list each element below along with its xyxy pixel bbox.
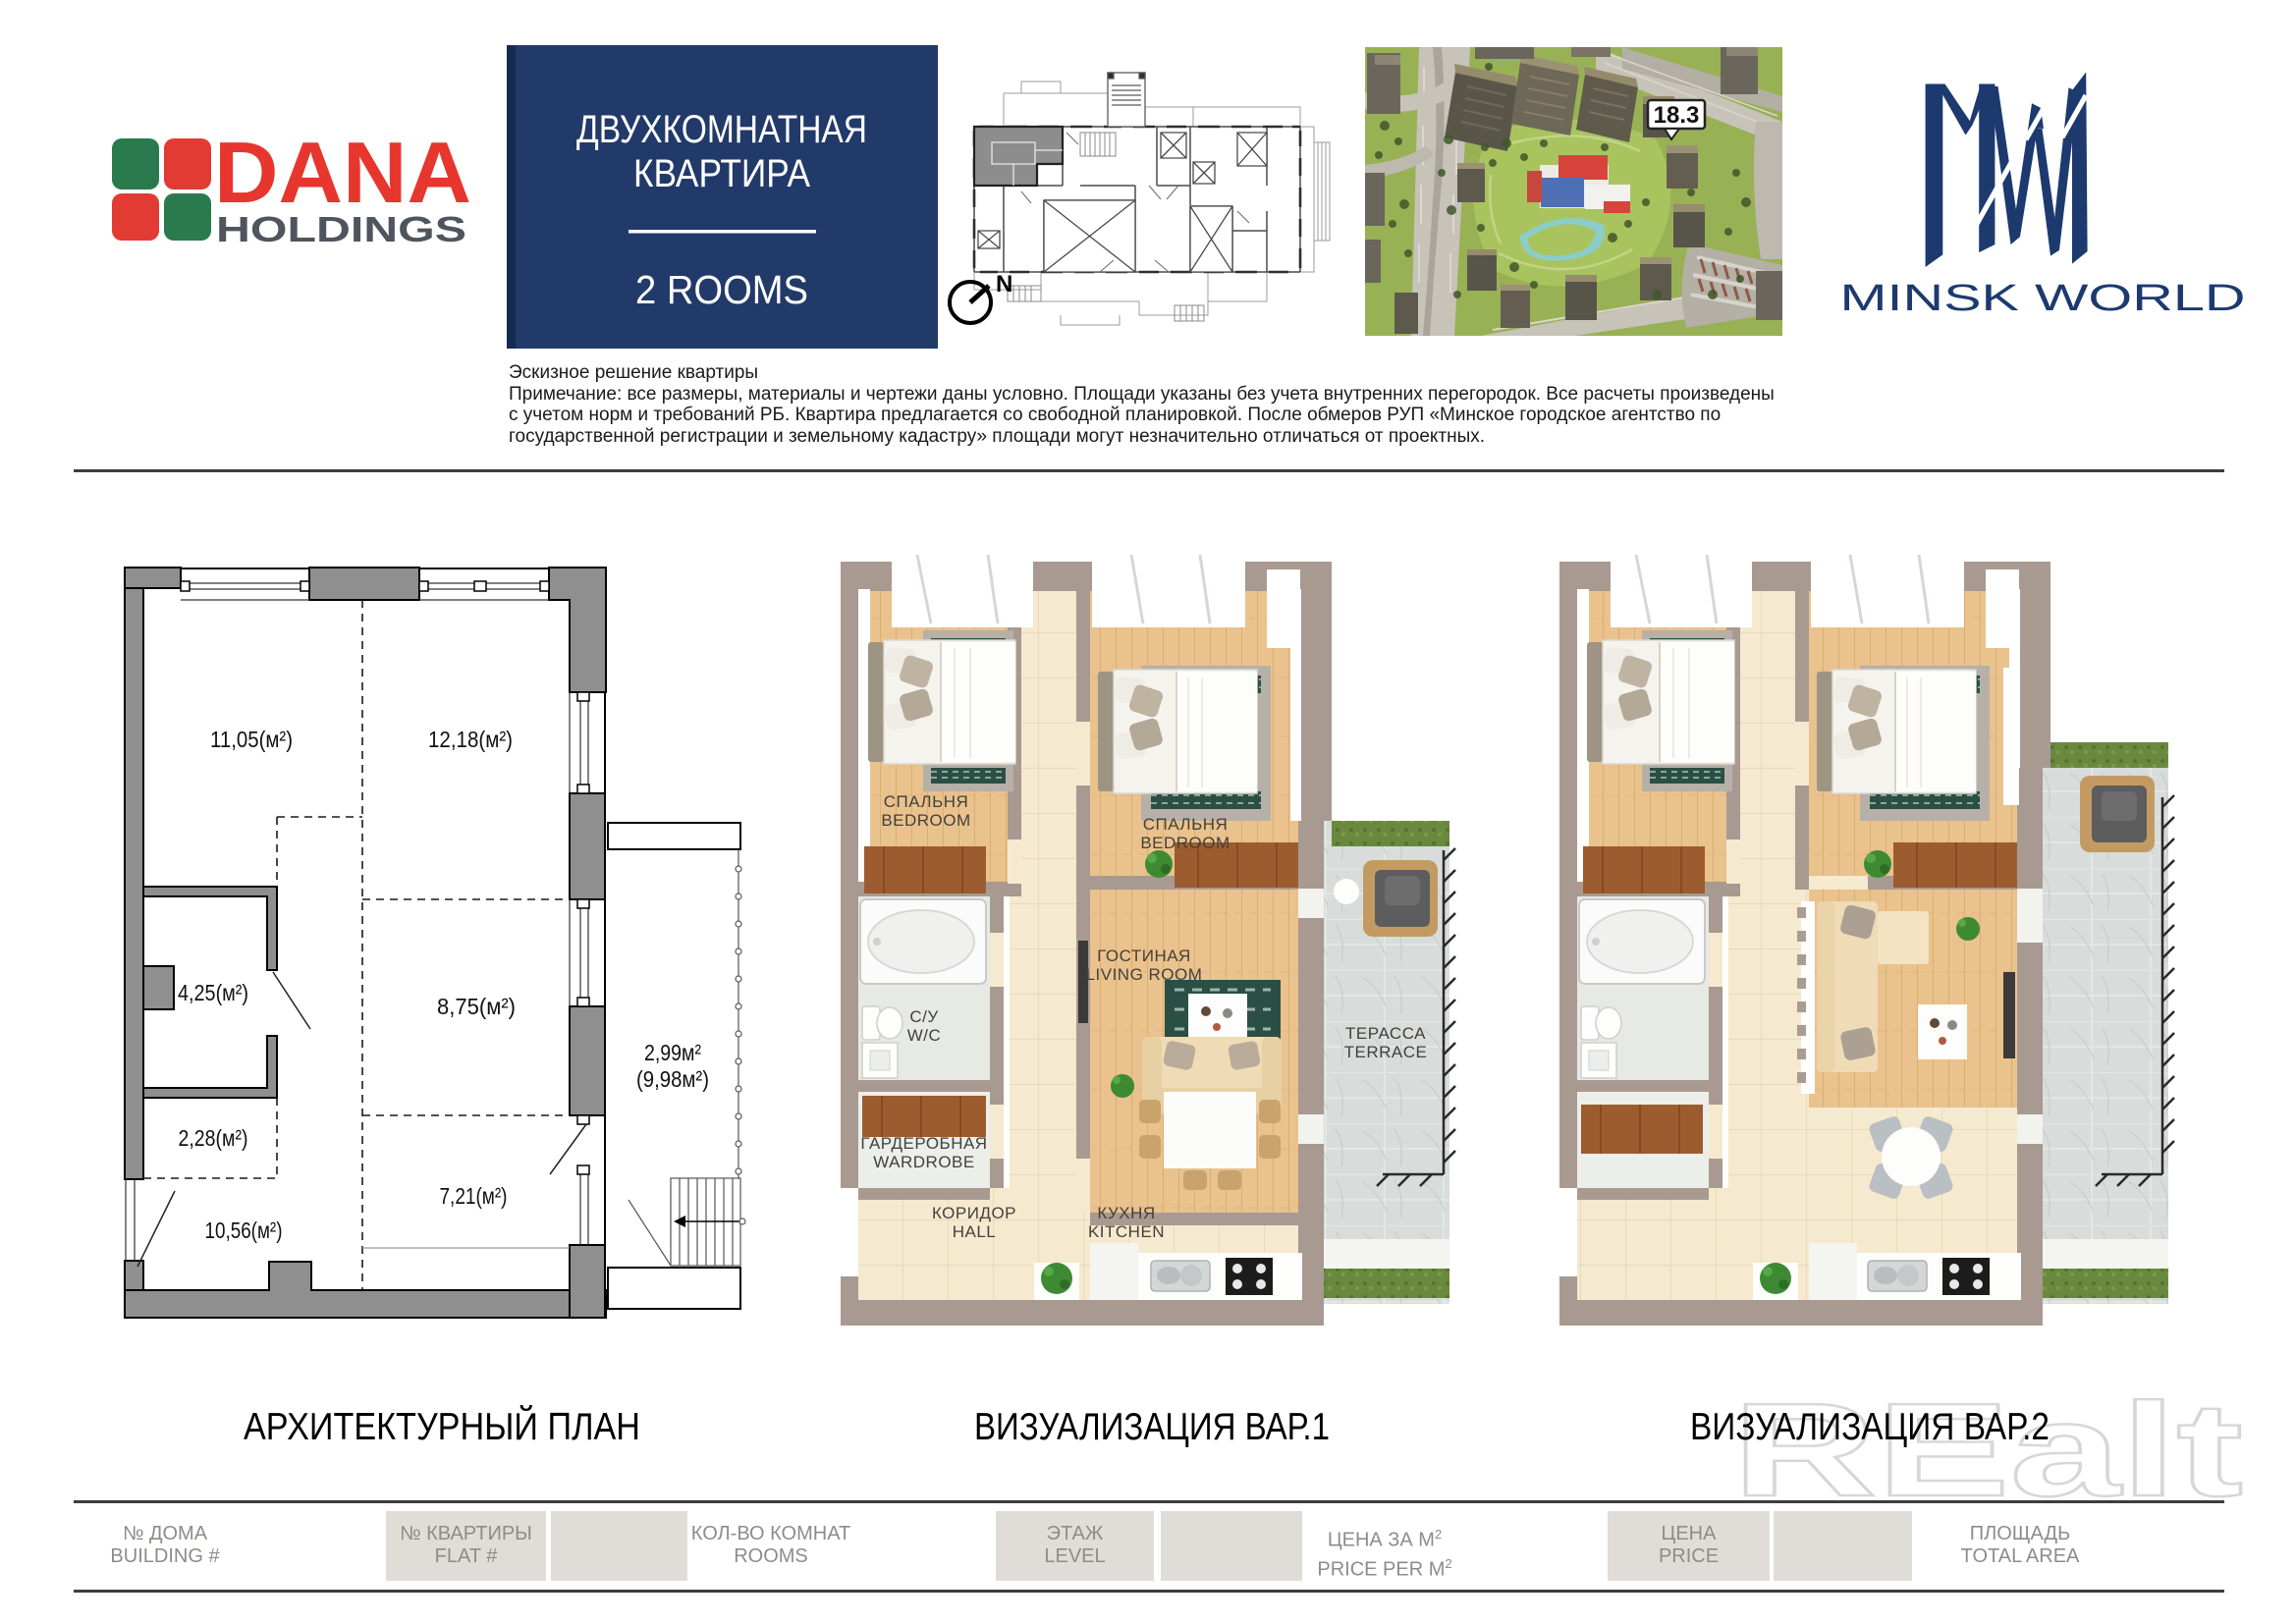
svg-text:С/У: С/У [909, 1007, 938, 1026]
svg-text:BEDROOM: BEDROOM [881, 811, 970, 830]
svg-text:ГОСТИНАЯ: ГОСТИНАЯ [1097, 947, 1191, 965]
svg-text:WARDROBE: WARDROBE [873, 1153, 975, 1171]
svg-text:TERRACE: TERRACE [1344, 1043, 1428, 1061]
svg-text:HOLDINGS: HOLDINGS [216, 209, 466, 245]
svg-text:СПАЛЬНЯ: СПАЛЬНЯ [1143, 815, 1229, 834]
svg-text:АРХИТЕКТУРНЫЙ ПЛАН: АРХИТЕКТУРНЫЙ ПЛАН [244, 1404, 640, 1448]
svg-text:КВАРТИРА: КВАРТИРА [633, 152, 810, 195]
svg-text:ВИЗУАЛИЗАЦИЯ ВАР.2: ВИЗУАЛИЗАЦИЯ ВАР.2 [1690, 1406, 2050, 1448]
svg-text:ВИЗУАЛИЗАЦИЯ ВАР.1: ВИЗУАЛИЗАЦИЯ ВАР.1 [974, 1406, 1330, 1448]
svg-text:BEDROOM: BEDROOM [1140, 834, 1230, 852]
svg-text:(9,98м²): (9,98м²) [636, 1066, 709, 1092]
svg-text:12,18(м²): 12,18(м²) [428, 727, 513, 752]
svg-text:LIVING ROOM: LIVING ROOM [1086, 965, 1203, 984]
svg-text:HALL: HALL [953, 1222, 997, 1241]
svg-text:ДВУХКОМНАТНАЯ: ДВУХКОМНАТНАЯ [576, 108, 867, 151]
svg-text:W/C: W/C [907, 1026, 942, 1045]
svg-text:2,28(м²): 2,28(м²) [179, 1125, 248, 1151]
svg-text:DANA: DANA [214, 133, 471, 221]
svg-text:N: N [996, 271, 1012, 298]
svg-text:КУХНЯ: КУХНЯ [1097, 1204, 1155, 1222]
svg-text:11,05(м²): 11,05(м²) [210, 727, 293, 752]
svg-text:ТЕРАССА: ТЕРАССА [1345, 1024, 1426, 1043]
svg-text:4,25(м²): 4,25(м²) [178, 980, 248, 1005]
svg-text:8,75(м²): 8,75(м²) [437, 994, 516, 1019]
svg-text:MINSK WORLD: MINSK WORLD [1840, 278, 2246, 319]
svg-text:СПАЛЬНЯ: СПАЛЬНЯ [884, 792, 969, 811]
svg-text:18.3: 18.3 [1654, 102, 1700, 129]
svg-text:KITCHEN: KITCHEN [1088, 1222, 1165, 1241]
svg-text:2,99м²: 2,99м² [644, 1040, 701, 1065]
svg-text:7,21(м²): 7,21(м²) [440, 1183, 508, 1209]
svg-text:КОРИДОР: КОРИДОР [932, 1204, 1016, 1222]
svg-text:10,56(м²): 10,56(м²) [205, 1218, 283, 1243]
svg-text:2 ROOMS: 2 ROOMS [635, 267, 808, 312]
svg-text:ГАРДЕРОБНАЯ: ГАРДЕРОБНАЯ [860, 1134, 987, 1153]
